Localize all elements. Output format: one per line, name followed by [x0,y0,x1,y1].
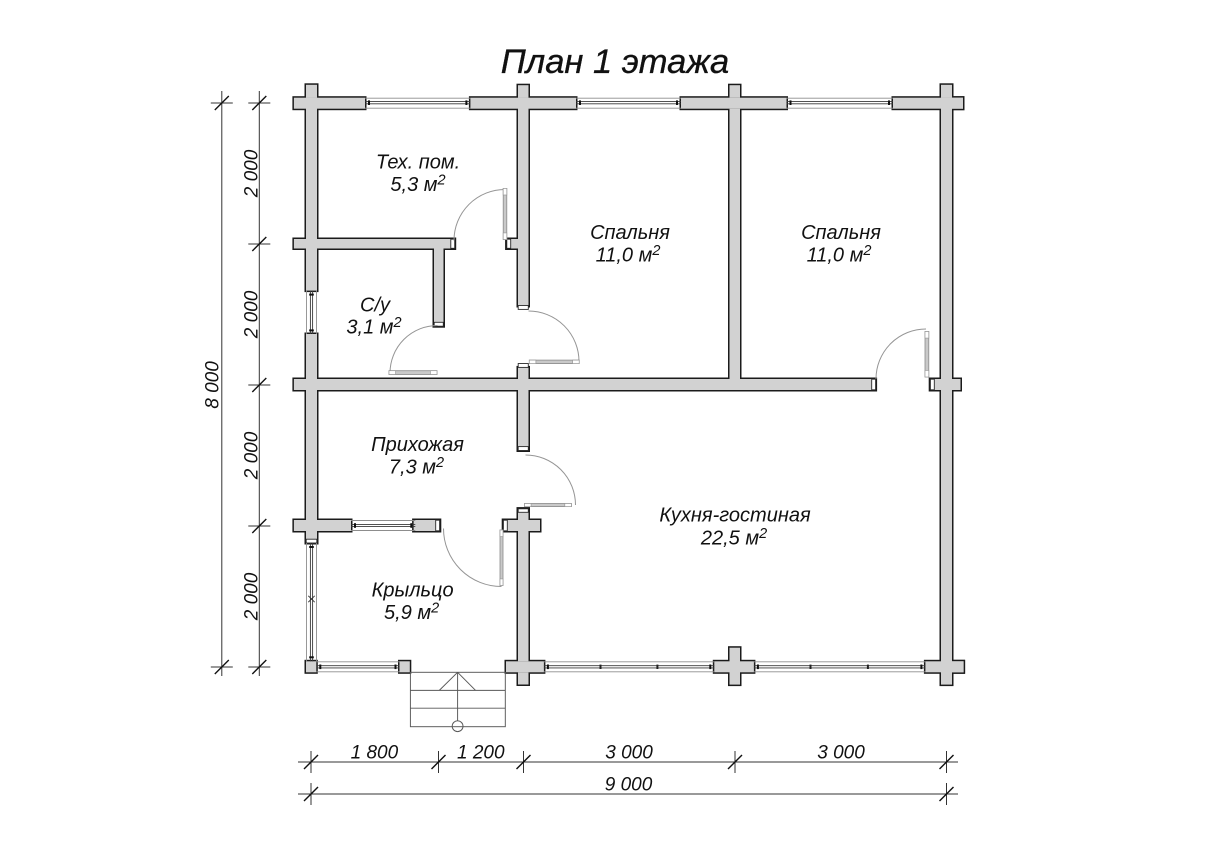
svg-text:Спальня: Спальня [801,222,881,244]
svg-text:Прихожая: Прихожая [371,434,464,456]
svg-text:11,0 м2: 11,0 м2 [596,243,661,267]
svg-text:3 000: 3 000 [605,743,653,764]
svg-text:2 000: 2 000 [242,572,263,621]
svg-text:1 800: 1 800 [351,743,399,764]
svg-text:Спальня: Спальня [590,222,670,244]
svg-text:9 000: 9 000 [605,775,653,796]
svg-text:Кухня-гостиная: Кухня-гостиная [659,505,811,527]
svg-text:8 000: 8 000 [203,361,224,409]
svg-text:11,0 м2: 11,0 м2 [807,243,872,267]
svg-text:3,1 м2: 3,1 м2 [346,315,401,339]
svg-text:5,3 м2: 5,3 м2 [390,172,445,196]
svg-text:План 1 этажа: План 1 этажа [501,43,729,81]
svg-text:Тех. пом.: Тех. пом. [376,152,460,174]
svg-text:С/у: С/у [360,295,391,317]
svg-text:2 000: 2 000 [242,149,263,198]
svg-text:Крыльцо: Крыльцо [372,580,454,602]
svg-text:2 000: 2 000 [242,290,263,339]
svg-text:3 000: 3 000 [817,743,865,764]
svg-text:22,5 м2: 22,5 м2 [700,526,767,550]
svg-text:2 000: 2 000 [242,431,263,480]
svg-text:7,3 м2: 7,3 м2 [389,455,444,479]
svg-text:5,9 м2: 5,9 м2 [384,600,439,624]
svg-text:1 200: 1 200 [457,743,505,764]
